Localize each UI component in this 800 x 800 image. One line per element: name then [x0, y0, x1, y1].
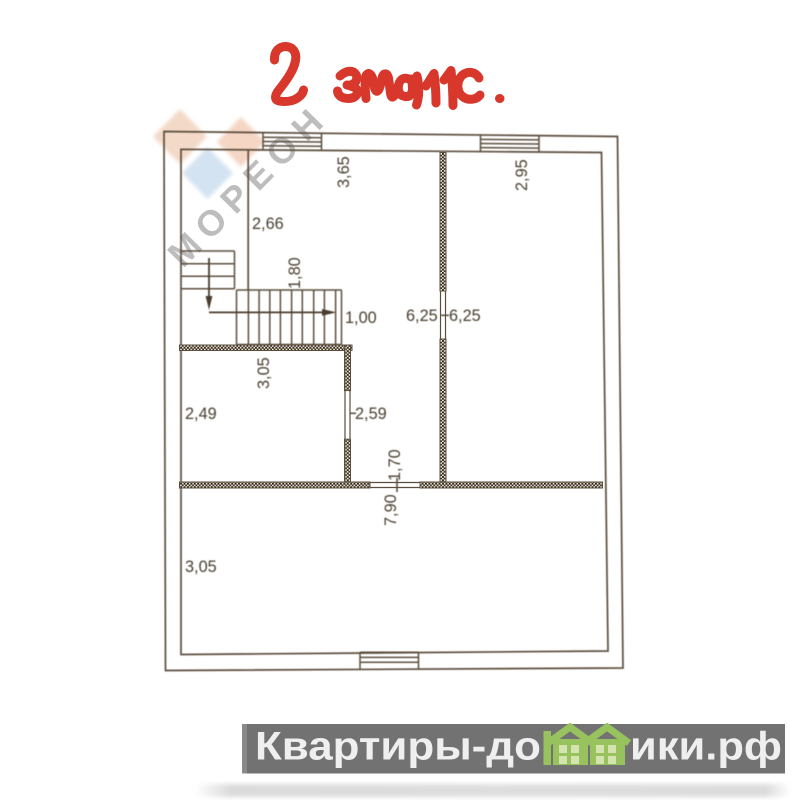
svg-text:6,25: 6,25: [449, 307, 481, 325]
svg-text:2,59: 2,59: [355, 405, 387, 423]
svg-text:2,95: 2,95: [513, 159, 531, 191]
svg-text:2,66: 2,66: [252, 215, 284, 233]
svg-text:3,05: 3,05: [185, 558, 217, 576]
svg-text:6,25: 6,25: [406, 307, 438, 325]
svg-text:1,70: 1,70: [386, 449, 404, 481]
svg-text:1,80: 1,80: [286, 257, 304, 289]
svg-text:2,49: 2,49: [185, 405, 217, 423]
svg-text:1,00: 1,00: [345, 309, 377, 327]
svg-text:3,05: 3,05: [255, 357, 273, 389]
svg-text:ики.рф: ики.рф: [630, 725, 782, 769]
svg-text:7,90: 7,90: [382, 494, 400, 526]
svg-text:3,65: 3,65: [335, 156, 353, 188]
svg-text:Квартиры-до: Квартиры-до: [255, 725, 541, 769]
